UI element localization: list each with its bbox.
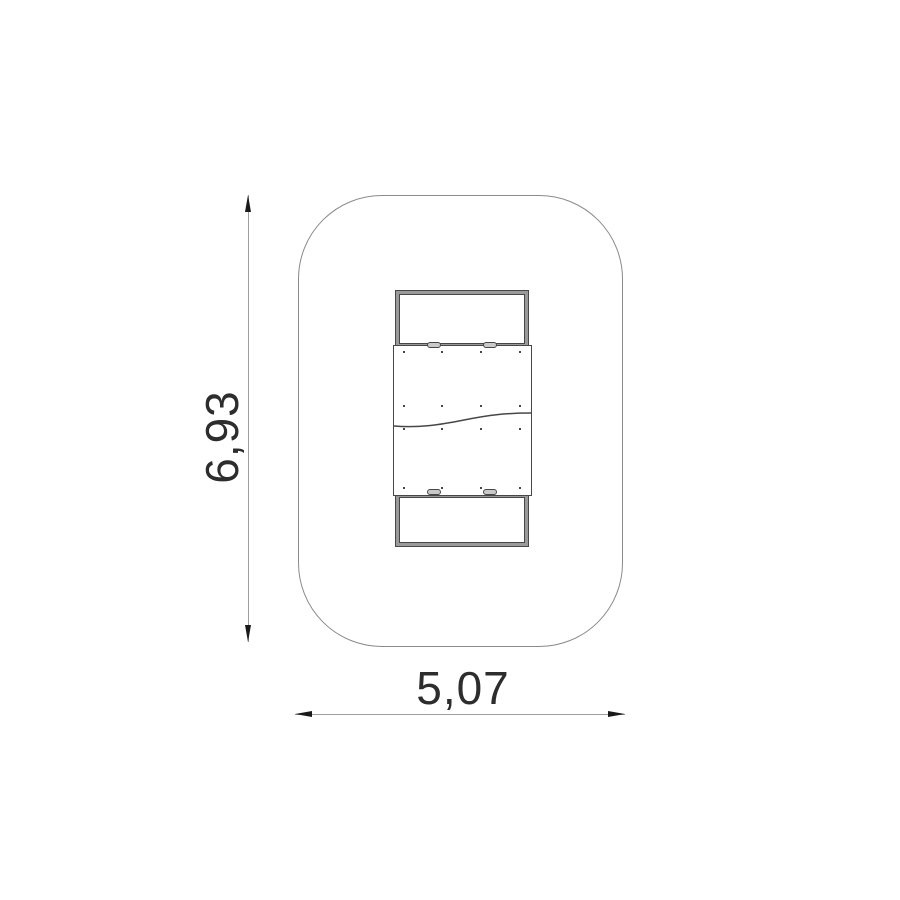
fastener-dot xyxy=(441,351,443,353)
technical-drawing-canvas: 6,93 5,07 xyxy=(0,0,900,900)
mounting-slot xyxy=(427,342,441,348)
fastener-dot xyxy=(519,428,521,430)
equipment-bottom-frame xyxy=(395,493,529,547)
fastener-dot xyxy=(403,487,405,489)
arrow-up-icon xyxy=(245,195,251,212)
fastener-dot xyxy=(441,405,443,407)
width-dimension-line xyxy=(295,714,625,715)
fastener-dot xyxy=(480,351,482,353)
equipment-deck-panel xyxy=(393,345,532,496)
fastener-dot xyxy=(441,487,443,489)
panel-seam-curve xyxy=(394,401,531,441)
fastener-dot xyxy=(519,405,521,407)
fastener-dot xyxy=(519,487,521,489)
seam-path xyxy=(394,413,531,427)
arrow-right-icon xyxy=(608,711,625,717)
fastener-dot xyxy=(403,428,405,430)
height-dimension-line xyxy=(248,195,249,642)
fastener-dot xyxy=(403,405,405,407)
fastener-dot xyxy=(480,487,482,489)
mounting-slot xyxy=(483,489,497,495)
fastener-dot xyxy=(480,428,482,430)
arrow-down-icon xyxy=(245,625,251,642)
equipment-top-frame xyxy=(395,290,529,348)
mounting-slot xyxy=(483,342,497,348)
fastener-dot xyxy=(480,405,482,407)
height-dimension-label: 6,93 xyxy=(199,377,245,497)
mounting-slot xyxy=(427,489,441,495)
fastener-dot xyxy=(441,428,443,430)
fastener-dot xyxy=(403,351,405,353)
fastener-dot xyxy=(519,351,521,353)
arrow-left-icon xyxy=(295,711,312,717)
width-dimension-label: 5,07 xyxy=(363,665,563,711)
